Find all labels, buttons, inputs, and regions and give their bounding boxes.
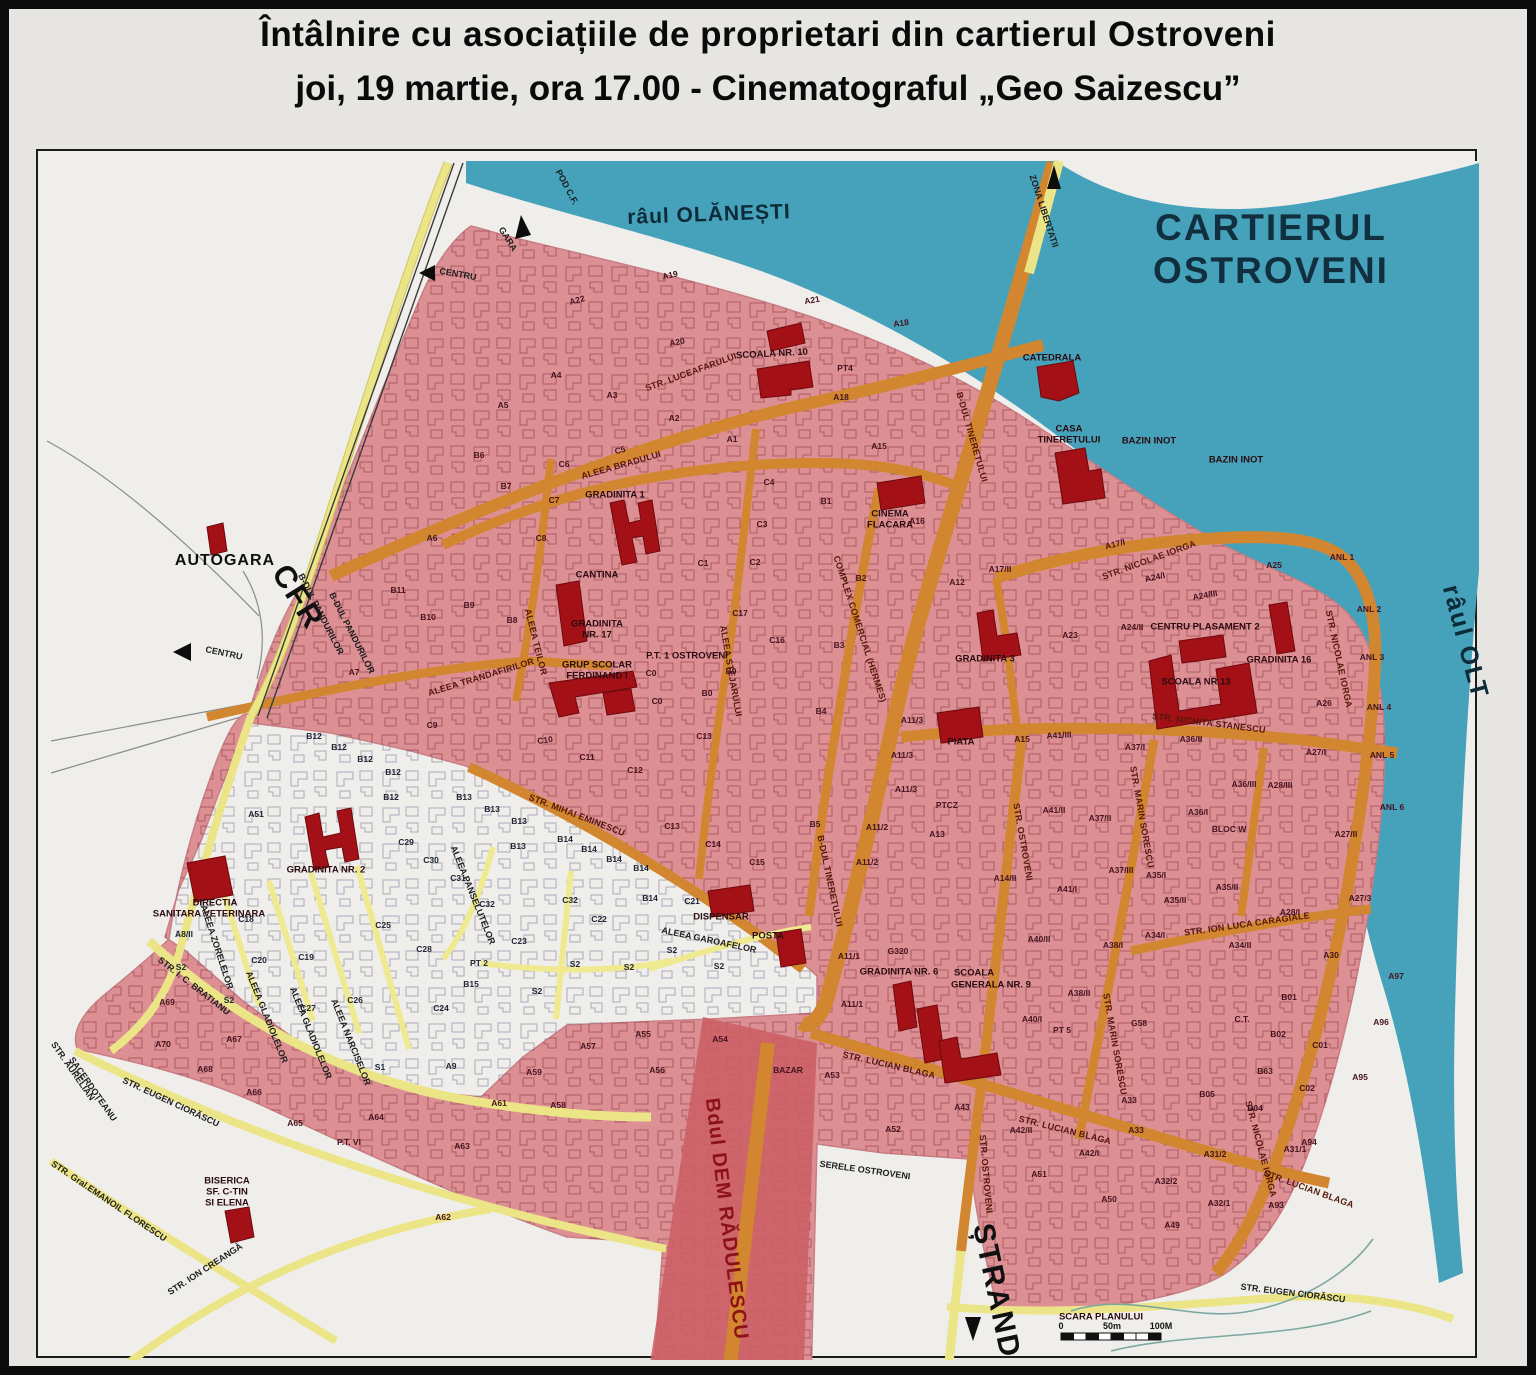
poster-page: Întâlnire cu asociațiile de proprietari … [0,0,1536,1375]
poster-header: Întâlnire cu asociațiile de proprietari … [9,15,1527,109]
header-line-1: Întâlnire cu asociațiile de proprietari … [9,15,1527,55]
map-panel [36,149,1477,1358]
header-line-2: joi, 19 martie, ora 17.00 - Cinematograf… [9,69,1527,109]
map-graphic [38,151,1479,1360]
scale-bar [1061,1333,1161,1340]
